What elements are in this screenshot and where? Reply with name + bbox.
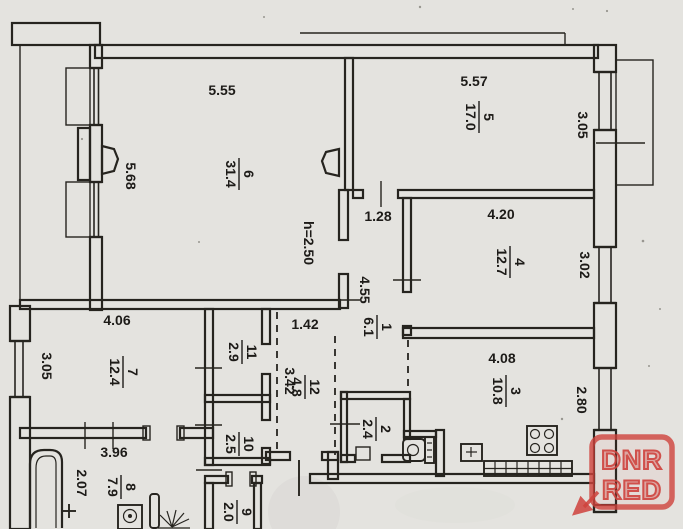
dim-corridor12-width: 1.42 bbox=[291, 316, 318, 332]
dim-room6-height: 5.68 bbox=[123, 162, 139, 189]
dim-room3-width: 4.08 bbox=[488, 350, 515, 366]
dim-room4-height: 3.02 bbox=[577, 251, 593, 278]
svg-text:1: 1 bbox=[379, 323, 395, 331]
watermark-line2: RED bbox=[602, 475, 662, 505]
dim-hall-length: 4.55 bbox=[357, 276, 373, 303]
svg-text:7.9: 7.9 bbox=[105, 477, 121, 497]
floor-plan-scan: 5.55 5.57 4.20 1.28 4.08 4.06 1.42 3.96 … bbox=[0, 0, 683, 529]
dim-room8-width: 3.96 bbox=[100, 444, 127, 460]
svg-text:4: 4 bbox=[512, 258, 528, 266]
dim-room4-width: 4.20 bbox=[487, 206, 514, 222]
svg-text:6.1: 6.1 bbox=[361, 317, 377, 337]
svg-text:2.4: 2.4 bbox=[360, 419, 376, 439]
dim-room8-height: 2.07 bbox=[74, 469, 90, 496]
svg-text:12.7: 12.7 bbox=[494, 248, 510, 275]
floor-plan-drawing: 5.55 5.57 4.20 1.28 4.08 4.06 1.42 3.96 … bbox=[0, 0, 683, 529]
svg-text:12.4: 12.4 bbox=[107, 358, 123, 385]
dim-room5-height: 3.05 bbox=[575, 111, 591, 138]
svg-text:31.4: 31.4 bbox=[223, 160, 239, 187]
ceiling-height-note: h=2.50 bbox=[301, 221, 317, 265]
svg-text:7: 7 bbox=[125, 368, 141, 376]
svg-text:2.5: 2.5 bbox=[223, 434, 239, 454]
svg-text:12: 12 bbox=[307, 379, 323, 395]
dim-room6-width: 5.55 bbox=[208, 82, 235, 98]
dim-room7-width: 4.06 bbox=[103, 312, 130, 328]
svg-text:9: 9 bbox=[239, 508, 255, 516]
svg-text:3: 3 bbox=[508, 387, 524, 395]
svg-text:2.0: 2.0 bbox=[221, 502, 237, 522]
svg-text:2: 2 bbox=[378, 425, 394, 433]
watermark-stamp: DNR RED bbox=[575, 437, 672, 513]
dim-room5-width: 5.57 bbox=[460, 73, 487, 89]
dim-hall-width: 1.28 bbox=[364, 208, 391, 224]
dim-room7-height: 3.05 bbox=[39, 352, 55, 379]
svg-text:10: 10 bbox=[241, 436, 257, 452]
svg-text:2.9: 2.9 bbox=[226, 342, 242, 362]
svg-text:10.8: 10.8 bbox=[490, 377, 506, 404]
svg-text:8: 8 bbox=[123, 483, 139, 491]
svg-text:5: 5 bbox=[481, 113, 497, 121]
watermark-line1: DNR bbox=[601, 445, 663, 475]
scan-smudge-2 bbox=[395, 487, 515, 523]
svg-text:11: 11 bbox=[244, 345, 260, 360]
svg-text:17.0: 17.0 bbox=[463, 103, 479, 130]
svg-text:4.8: 4.8 bbox=[289, 377, 305, 397]
dim-room3-height: 2.80 bbox=[574, 386, 590, 413]
svg-text:6: 6 bbox=[241, 170, 257, 178]
